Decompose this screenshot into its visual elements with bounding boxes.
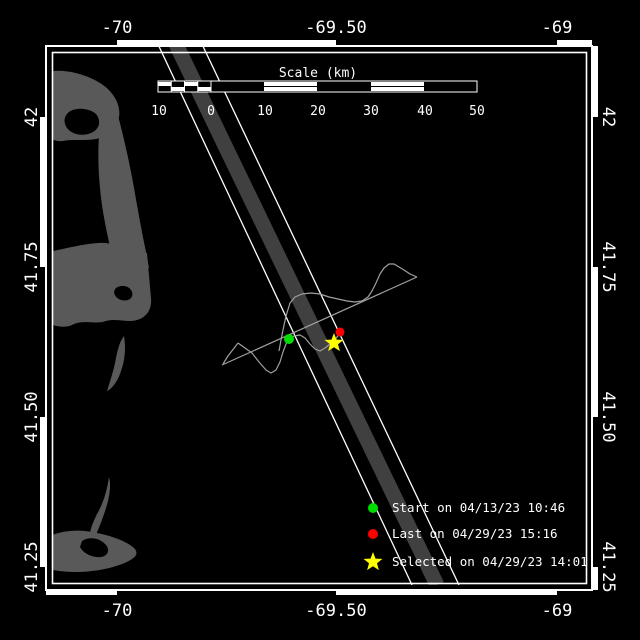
scale-bar-title: Scale (km) <box>279 66 357 81</box>
frame-zebra-segment <box>593 46 598 117</box>
legend-label-selected: Selected on 04/29/23 14:01 <box>392 554 588 569</box>
scale-tick-label: 0 <box>207 104 215 119</box>
frame-zebra-segment <box>593 267 598 417</box>
lat-label-left: 41.50 <box>22 391 42 442</box>
legend: Start on 04/13/23 10:46Last on 04/29/23 … <box>364 500 588 570</box>
lat-label-right: 41.50 <box>598 391 618 442</box>
scale-tick-label: 10 <box>257 104 273 119</box>
map-plot-window: Scale (km) 1001020304050 -70-70-69.50-69… <box>0 0 640 640</box>
scale-bar-segment <box>371 87 424 91</box>
scale-bar-subcell <box>171 87 184 91</box>
last-marker[interactable] <box>336 328 345 337</box>
nantucket-great-point <box>90 477 110 535</box>
scale-bar-segment <box>264 82 317 86</box>
coastline-land-layer <box>48 71 151 572</box>
lon-label-bottom: -69 <box>542 601 573 621</box>
lat-label-left: 41.75 <box>22 241 42 292</box>
scale-tick-label: 20 <box>310 104 326 119</box>
start-marker[interactable] <box>284 334 294 344</box>
lon-label-top: -69.50 <box>305 18 366 38</box>
lon-label-bottom: -69.50 <box>305 601 366 621</box>
lat-label-left: 41.25 <box>22 541 42 592</box>
frame-zebra-segment <box>593 567 598 590</box>
cape-cod-midcape <box>48 243 151 327</box>
lat-label-left: 42 <box>22 107 42 127</box>
legend-last-marker <box>368 529 378 539</box>
lon-label-top: -69 <box>542 18 573 38</box>
legend-start-marker <box>368 503 378 513</box>
scale-tick-label: 40 <box>417 104 433 119</box>
map-canvas[interactable]: Scale (km) 1001020304050 -70-70-69.50-69… <box>0 0 640 640</box>
lat-label-right: 41.25 <box>598 541 618 592</box>
lon-label-top: -70 <box>102 18 133 38</box>
legend-label-last: Last on 04/29/23 15:16 <box>392 526 558 541</box>
scale-bar-segment <box>371 82 424 86</box>
frame-zebra-segment <box>117 40 336 45</box>
legend-selected-marker <box>364 552 383 570</box>
scale-tick-label: 10 <box>151 104 167 119</box>
monomoy-island <box>107 336 125 391</box>
lat-label-right: 42 <box>598 107 618 127</box>
scale-bar-subcell <box>158 82 171 86</box>
scale-tick-label: 50 <box>469 104 485 119</box>
scale-bar-subcell <box>185 82 198 86</box>
frame-zebra-segment <box>557 40 592 45</box>
lat-label-right: 41.75 <box>598 241 618 292</box>
scale-bar-segment <box>264 87 317 91</box>
lon-label-bottom: -70 <box>102 601 133 621</box>
scale-tick-label: 30 <box>363 104 379 119</box>
legend-label-start: Start on 04/13/23 10:46 <box>392 500 565 515</box>
scale-bar-subcell <box>198 87 211 91</box>
